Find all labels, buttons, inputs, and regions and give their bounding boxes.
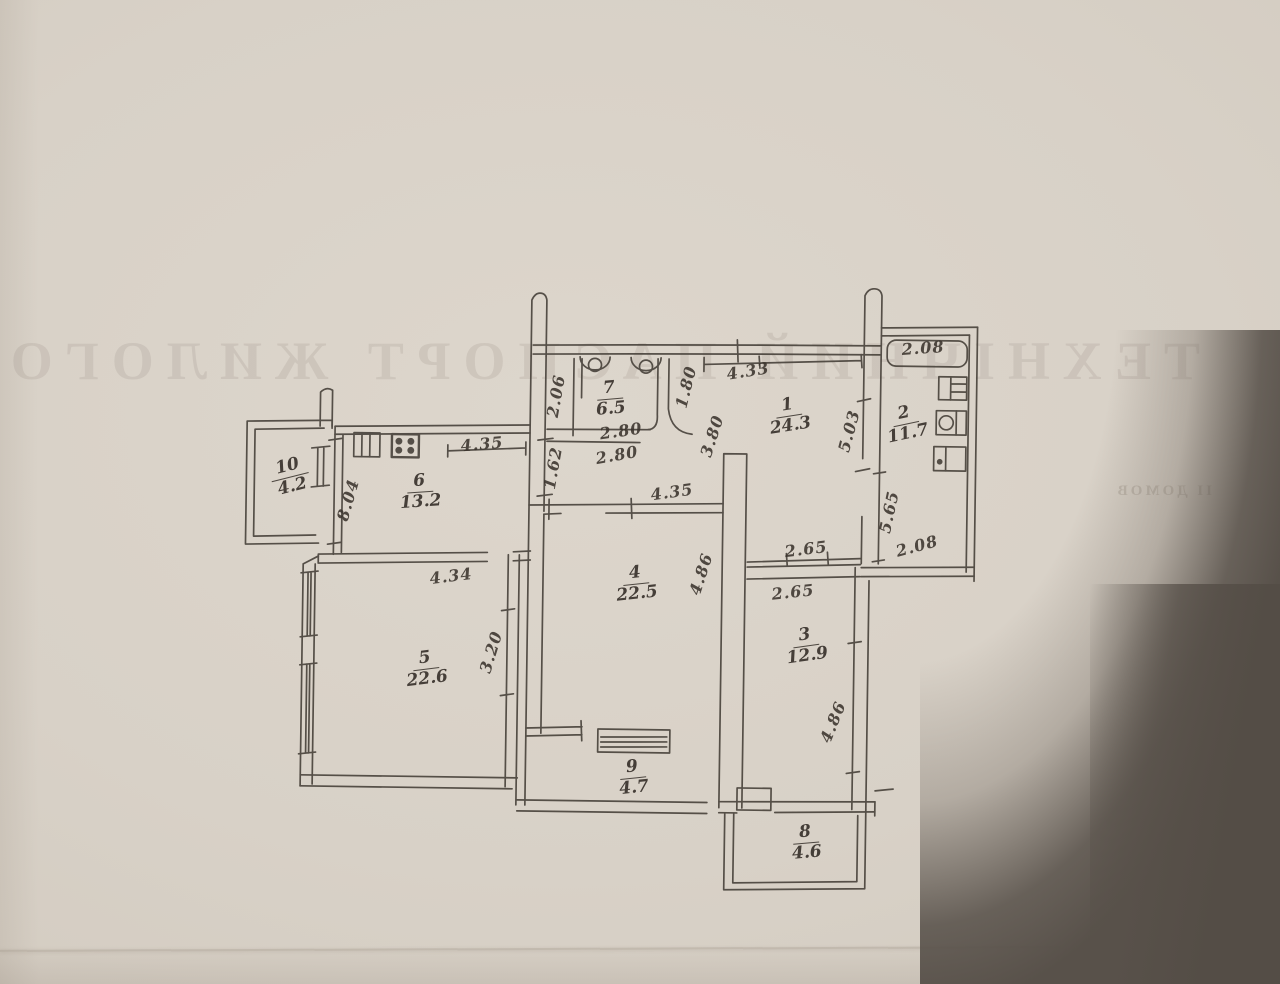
washbasin-icon	[631, 357, 661, 373]
stove-icon	[939, 377, 967, 400]
wall	[529, 501, 723, 517]
wall	[719, 454, 747, 808]
sink-icon	[936, 411, 966, 435]
kitchen-sink-icon	[354, 433, 380, 457]
kitchen-stove-icon	[392, 434, 419, 457]
wall	[573, 359, 582, 436]
dimension-line	[704, 352, 862, 373]
wall	[526, 720, 582, 741]
wardrobe-icon	[598, 729, 670, 753]
wall	[541, 514, 544, 733]
wall	[861, 289, 882, 564]
dimension-tick	[737, 340, 738, 362]
wall-lines	[241, 280, 978, 893]
dimension-tick	[549, 497, 632, 520]
wall	[747, 563, 860, 581]
paper-sheet: ТЕХНІЧНИЙ ПАСПОРТ ЖИЛОГО ІІ ДОМОВ	[0, 0, 1280, 984]
dimension-line	[448, 441, 526, 458]
dimension-tick	[875, 789, 893, 816]
appliance-icon	[934, 447, 966, 471]
wall	[861, 566, 974, 579]
wall	[966, 327, 978, 581]
wall	[333, 426, 343, 554]
wall	[505, 555, 519, 805]
wall	[533, 341, 880, 359]
wall	[335, 422, 530, 437]
dimension-tick	[854, 399, 886, 562]
wall	[852, 568, 869, 810]
window-icon	[311, 446, 330, 487]
wall	[724, 808, 866, 892]
loggia-window-icon	[887, 340, 967, 367]
wall	[547, 428, 650, 442]
floor-plan-drawing	[0, 0, 1280, 984]
wall	[648, 359, 693, 435]
wall	[881, 326, 977, 337]
wall	[300, 775, 517, 789]
wall	[531, 293, 547, 356]
wall	[245, 419, 332, 545]
wall	[517, 800, 707, 814]
toilet-icon	[580, 357, 610, 372]
wall	[318, 548, 530, 566]
